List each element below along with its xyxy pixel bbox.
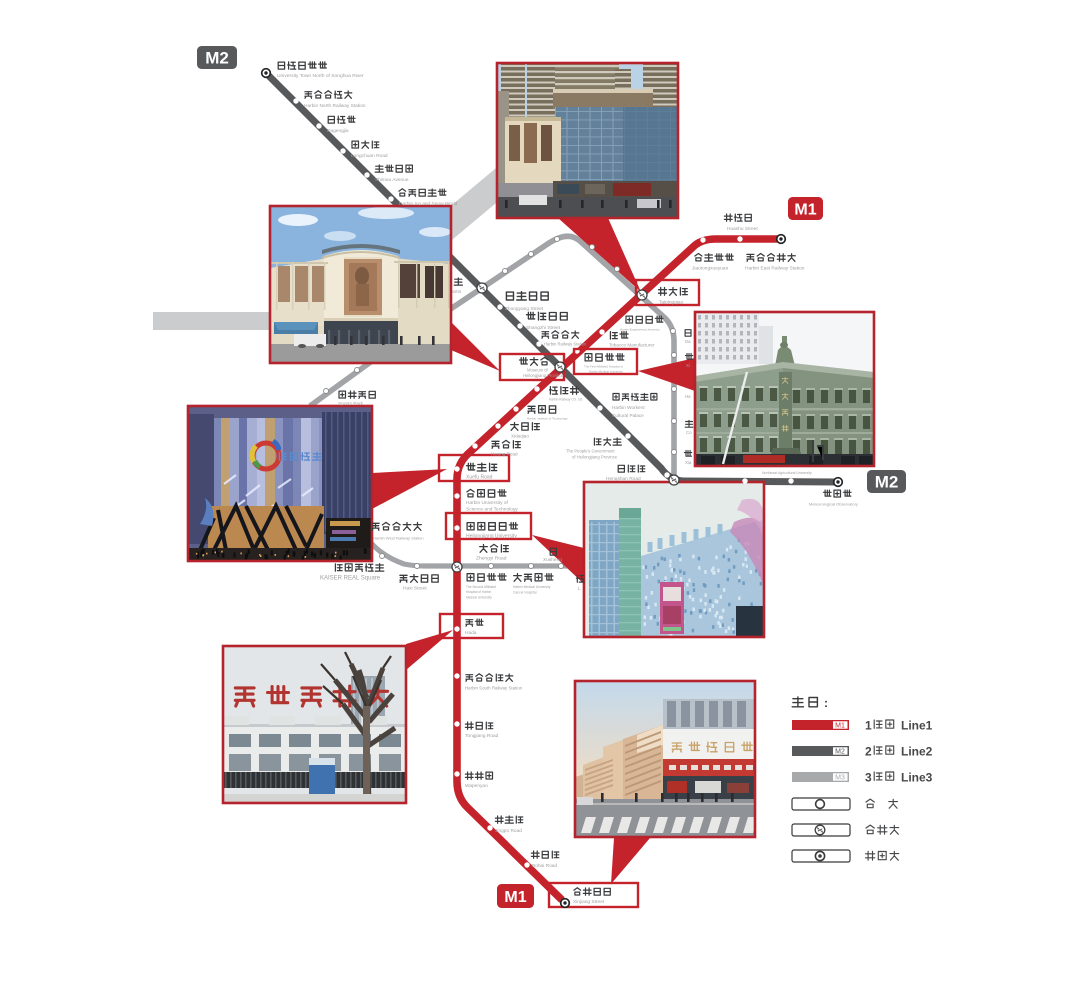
svg-text:Hexing Road: Hexing Road [491,452,518,457]
svg-text:Harbin Workers': Harbin Workers' [612,405,645,410]
svg-text:Jingpo Road: Jingpo Road [495,828,522,834]
svg-text:Harbin Institute of Technology: Harbin Institute of Technology [527,417,568,421]
svg-text:Harbin East Railway Station: Harbin East Railway Station [745,266,805,272]
svg-text:M2: M2 [835,749,845,756]
svg-text:Cultural Palace: Cultural Palace [612,413,644,418]
svg-text:Ha: Ha [685,394,691,399]
svg-text:Bohai Road: Bohai Road [532,863,557,869]
svg-text:Hospital of Harbin: Hospital of Harbin [466,590,492,594]
svg-text:The Second Affiliated: The Second Affiliated [466,585,496,589]
svg-text:Tobacco Manufacturer: Tobacco Manufacturer [609,343,655,348]
svg-text:3: 3 [865,771,872,785]
svg-text:Dagengjia: Dagengjia [327,128,349,134]
svg-text:M3: M3 [835,775,845,782]
svg-text:Line1: Line1 [901,719,933,733]
svg-text:University Town North of Songh: University Town North of Songhua River [277,73,364,79]
svg-text:Tongjiang Road: Tongjiang Road [465,733,499,739]
svg-text:Huashu Street: Huashu Street [727,226,758,232]
svg-text:Harbin Railway CO. Ltd: Harbin Railway CO. Ltd [549,398,583,402]
svg-text:Heilongjiang Province: Heilongjiang Province [523,373,564,378]
svg-text:Line3: Line3 [901,771,933,785]
svg-text:Xia: Xia [685,460,692,465]
svg-text::: : [824,696,828,710]
svg-text:Line2: Line2 [901,745,933,759]
svg-text:M1: M1 [504,889,526,906]
svg-text:Longchuan Road: Longchuan Road [351,153,388,159]
svg-text:Da: Da [685,339,691,344]
svg-text:Northeast Agricultural Univers: Northeast Agricultural University [762,471,812,475]
svg-text:Wapenyao: Wapenyao [465,783,488,789]
svg-text:M1: M1 [794,201,816,218]
svg-text:The People's Government: The People's Government [566,449,615,454]
svg-text:Co: Co [686,430,692,435]
svg-text:Meteorological Observatory: Meteorological Observatory [809,502,858,507]
svg-text:Museum of: Museum of [527,368,549,373]
svg-text:Harbin University of: Harbin University of [466,500,509,506]
svg-text:L: L [578,586,581,592]
svg-text:artin: artin [452,289,462,295]
svg-text:Hengshan Road: Hengshan Road [606,476,641,482]
svg-text:2: 2 [865,745,872,759]
svg-text:KAISER REAL Square: KAISER REAL Square [320,576,381,582]
svg-text:Xuefu Road: Xuefu Road [466,475,493,481]
svg-text:Shangzhi Street: Shangzhi Street [526,325,561,331]
svg-text:1: 1 [865,719,872,733]
svg-text:Xusheng: Xusheng [543,557,562,563]
svg-text:of Heilongjiang Province: of Heilongjiang Province [572,455,618,460]
svg-text:Xidaqiao: Xidaqiao [511,434,529,439]
svg-text:M2: M2 [205,49,229,68]
svg-text:Zhongyang Street: Zhongyang Street [505,306,544,312]
svg-text:Heilongjiang University: Heilongjiang University [466,534,517,540]
svg-text:Medical University: Medical University [466,595,492,599]
svg-text:Harbin South Railway Station: Harbin South Railway Station [465,686,523,691]
svg-text:M2: M2 [875,473,899,492]
svg-text:Cancer Hospital: Cancer Hospital [513,591,537,595]
svg-text:Science and Technology: Science and Technology [466,507,519,513]
svg-text:The First Affiliated Hospital: The First Affiliated Hospital of [584,365,623,369]
svg-text:Harbin Railway Station: Harbin Railway Station [544,342,587,347]
svg-text:Xinjiang Street: Xinjiang Street [573,899,605,905]
svg-text:Harbin Engineering University: Harbin Engineering University [620,328,660,332]
svg-text:Shimao Avenue: Shimao Avenue [375,177,409,183]
svg-text:M1: M1 [835,723,845,730]
svg-text:Hada: Hada [465,630,477,636]
svg-text:Sports Park: Sports Park [338,401,364,407]
svg-text:Harbin Ice and Snow World: Harbin Ice and Snow World [399,201,458,207]
svg-text:Zhengyi Road: Zhengyi Road [476,556,507,562]
svg-text:Jiaotongxueyuan: Jiaotongxueyuan [692,266,729,272]
svg-text:Haxi Street: Haxi Street [403,586,427,592]
svg-text:Xi: Xi [686,363,690,368]
svg-text:Harbin North Railway Station: Harbin North Railway Station [304,103,366,109]
svg-text:Harbin Medical University: Harbin Medical University [513,585,551,589]
svg-text:Harbin West Railway Station: Harbin West Railway Station [373,536,424,541]
svg-text:Taipingqiao: Taipingqiao [659,300,684,306]
svg-text:Harbin Medical University: Harbin Medical University [589,370,624,374]
